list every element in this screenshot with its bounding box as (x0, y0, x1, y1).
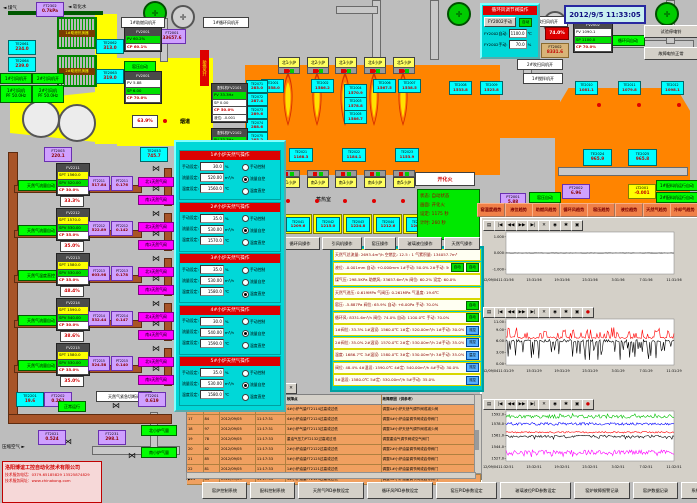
tag-value: 745.7 (147, 154, 160, 159)
status-label: 2#配料机运行自动 (656, 192, 697, 203)
comp-air-label: 压缩空气 ► (2, 444, 25, 450)
radio-温度直控[interactable]: 温度直控 (242, 342, 278, 350)
controller-row: SPT 1580.0 (58, 352, 88, 359)
radio-流量自控[interactable]: 流量自控 (242, 175, 278, 183)
controller-row: PV 1090.1 (575, 29, 611, 36)
chart-toolbar-icon-▣[interactable]: ▣ (571, 220, 583, 231)
svg-text:23:31:56: 23:31:56 (582, 278, 597, 282)
alarm-dot (315, 69, 319, 73)
green-indicator (376, 172, 380, 176)
alarm-cell: 调整重油气调节阀或空气阀门 (382, 435, 482, 444)
radio-label: 温度直控 (250, 343, 265, 349)
tag-TE2006: TE20061567.5 (373, 79, 396, 93)
radio-label: 流量自控 (250, 331, 265, 337)
svg-text:3:31:29: 3:31:29 (611, 369, 624, 373)
tag-value: 6.96 (571, 191, 581, 196)
bottom-button-7[interactable]: 窑炉数据记录 (633, 482, 678, 499)
field-input[interactable]: 540.00 (200, 328, 224, 337)
alarm-cell: 2#小炉油量FT2122过高或过低 (286, 445, 382, 454)
alarm-cell: 调整2#小炉油量调节阀或启停阀门 (382, 445, 482, 454)
south-valve-label: 南2天然气阀 (138, 240, 174, 250)
tag-value: -0.001 (635, 191, 650, 196)
data-row-text: 5#温设: 1580.0℃ 5#定: 530.00m³/h 5#手动: 35.0… (335, 375, 464, 385)
data-row: 循环风: 8331.6m³/h 阀位: 74.0% 自动: 1100.0℃ 手动… (333, 312, 481, 324)
field-label: 温度设定: (182, 289, 199, 295)
datetime-display: 2012/9/5 11:33:05 (564, 5, 646, 24)
tag-value: 0.147 (116, 318, 128, 322)
controller-title: FV2215 (58, 345, 88, 351)
data-row-text: 1#阀位: 33.3% 1#温设: 1560.0℃ 1#定: 520.00m³/… (335, 325, 464, 335)
radio-label: 流量自控 (250, 279, 265, 285)
op-button-引风机操作[interactable]: 引风机操作 (322, 237, 362, 250)
field-label: 手动设定: (182, 215, 199, 221)
radio-circle[interactable] (242, 215, 249, 222)
alarm-dot (401, 199, 405, 203)
controller-title: 配料机FV2102 (213, 130, 246, 136)
valve-icon: ⋈ (152, 365, 160, 373)
alarm-cell: 19 (187, 435, 204, 444)
tag-TE2201: TE220119.6 (16, 392, 44, 407)
radio-group: 手动控制流量自控温度直控 (242, 318, 278, 350)
radio-手动控制[interactable]: 手动控制 (242, 318, 278, 326)
alarm-row[interactable]: 21852012/09/0511:17:335#小炉油量FT2125过高或过低调… (187, 455, 481, 465)
tag-value: 1153.9 (400, 155, 415, 159)
circ-manual-label: FY2002手动: (484, 42, 508, 48)
svg-text:11.00: 11.00 (494, 320, 505, 324)
radio-手动控制[interactable]: 手动控制 (242, 369, 278, 377)
field-input[interactable]: 530.00 (200, 379, 224, 388)
circ-auto-value[interactable]: 1100.0 (509, 29, 527, 38)
svg-text:9.00: 9.00 (496, 328, 505, 332)
tag-value: 289.6 (251, 112, 263, 116)
company-name: 洛阳博谊工控自动化技术有限公司 (5, 464, 99, 472)
fy2002-manual-button[interactable]: FY2002手动 (484, 17, 516, 27)
controller-title: FV2213 (58, 255, 88, 261)
field-unit: m³/h (225, 381, 234, 386)
alarm-cell: 调整5#小炉油量调节阀或启停阀门 (382, 455, 482, 464)
svg-text:1.000: 1.000 (494, 235, 505, 239)
radio-温度直控[interactable]: 温度直控 (242, 187, 278, 195)
tag-value: 0.178 (116, 273, 128, 277)
heat-exchanger-1: 1#助燃热换器 (57, 17, 97, 49)
status-label: 2#吹扫风机开 (517, 59, 563, 70)
alarm-cell: 82 (204, 445, 221, 454)
bottom-button-1[interactable]: 配料控制系统 (250, 482, 295, 499)
tag-value: 1523.8 (484, 88, 499, 92)
data-row: 1#阀位: 33.3% 1#温设: 1560.0℃ 1#定: 520.00m³/… (333, 324, 481, 336)
alarm-header-cell: 故障点 (286, 395, 382, 404)
radio-circle[interactable] (242, 394, 249, 401)
trend-button-6[interactable]: 天然气趋势 (643, 203, 671, 217)
radio-流量自控[interactable]: 流量自控 (242, 227, 278, 235)
tag-TE2008: TE20081533.8 (449, 81, 472, 95)
alarm-cell: 4#小炉油量FT2124过高或过低 (286, 415, 382, 424)
radio-group: 手动控制流量自控温度直控 (242, 266, 278, 298)
tag-TE2041: TE20411209.6 (286, 217, 310, 232)
tag-TE2002: TE20021586.2 (311, 79, 334, 93)
alarm-cell: 2012/09/05 (220, 415, 256, 424)
radio-手动控制[interactable]: 手动控制 (242, 215, 278, 223)
field-unit: % (225, 216, 229, 221)
chart-toolbar-icon-●[interactable]: ● (582, 307, 594, 318)
trend-button-7[interactable]: 冷却气趋势 (670, 203, 697, 217)
tag-value: 8331.6 (547, 50, 563, 55)
south-port-label: 南3小炉 (335, 177, 357, 188)
tag-value: 1570.9 (348, 91, 363, 95)
mode-badge: 自动 (451, 263, 464, 272)
tag-FT2214: FT2214532.44 (88, 311, 110, 326)
radio-label: 手动控制 (250, 216, 265, 222)
svg-text:11:32:51: 11:32:51 (498, 465, 513, 469)
radio-circle[interactable] (242, 188, 249, 195)
alarm-cell: 调整3#小炉天然气调节阀或减少阀 (382, 425, 482, 434)
status-label: 1#配料机运行自动 (656, 180, 697, 191)
tag-TE2004: TE20041570.9 (344, 84, 367, 98)
tag-TE2043: TE20431224.8 (346, 217, 370, 232)
op-button-循环风操作[interactable]: 循环风操作 (280, 237, 320, 250)
field-input[interactable]: 35.0 (200, 265, 224, 274)
mode-badge: 流控 (466, 376, 479, 385)
tag-value: 19.6 (25, 399, 35, 404)
field-label: 流量设定: (182, 381, 199, 387)
alarm-row[interactable]: 17842012/09/0511:17:314#小炉油量FT2124过高或过低调… (187, 415, 481, 425)
bottom-button-3[interactable]: 循环风PID参数设定 (367, 482, 433, 499)
radio-手动控制[interactable]: 手动控制 (242, 163, 278, 171)
field-input[interactable]: 530.00 (200, 225, 224, 234)
data-row-text: 窑压: -5.887Pa 阀位: 65.9% 自动: +6.00Pa 手动: 7… (335, 300, 464, 310)
tag-value: 0.176 (116, 183, 128, 187)
trend-button-1[interactable]: 液位趋势 (505, 203, 533, 217)
bottom-button-6[interactable]: 窑炉故障报警记录 (574, 482, 630, 499)
alarm-cell: 重油气压力PT2132过高或过低 (286, 435, 382, 444)
alarm-dot (343, 69, 347, 73)
alarm-cell: 85 (204, 455, 221, 464)
svg-text:6.00: 6.00 (496, 339, 505, 343)
bottom-button-5[interactable]: 玻璃液位PID参数设定 (500, 482, 571, 499)
tag-TE2074: TE2074288.6 (246, 119, 268, 132)
status-label: 循环风自动 (611, 35, 645, 46)
tag-value: 522.89 (92, 228, 107, 232)
alarm-cell: 11:17:33 (256, 435, 286, 444)
field-input[interactable]: 30.0 (200, 162, 224, 171)
svg-text:7:32:51: 7:32:51 (639, 465, 652, 469)
tag-FT2002: FT20028331.6 (541, 43, 569, 58)
radio-circle[interactable] (242, 279, 249, 286)
tag-FT2211: FT2211517.84 (88, 176, 110, 191)
tag-PT2213: PT22130.178 (111, 266, 133, 281)
burner-indicator (335, 170, 357, 177)
status-label: 1#循环风机开 (203, 17, 249, 28)
tag-PT2002: PT20026.96 (562, 184, 590, 199)
alarm-row[interactable]: 20822012/09/0511:17:332#小炉油量FT2122过高或过低调… (187, 445, 481, 455)
gas-op-panel-title: 3#小炉天然气操作 (180, 254, 280, 263)
radio-label: 手动控制 (250, 319, 265, 325)
field-input[interactable]: 1560.0 (200, 184, 224, 193)
tag-TE2044: TE20441212.6 (376, 217, 400, 232)
controller-title: FV2001 (126, 29, 160, 35)
op-button-玻璃液位操作[interactable]: 玻璃液位操作 (398, 237, 442, 250)
bottom-button-4[interactable]: 窑压PID参数设定 (436, 482, 497, 499)
radio-circle[interactable] (242, 382, 249, 389)
mode-badge: 自动 (466, 263, 479, 272)
tag-value: 517.84 (92, 183, 107, 187)
tag-TE2003: TE20031578.8 (344, 97, 367, 111)
dynamic-layer: ✛✛✛✛✛✛FT23020.7kPaTE2061234.0TE2062313.0… (0, 0, 697, 503)
gas-op-panel-title: 4#小炉天然气操作 (180, 306, 280, 315)
process-data-panel: 天然气总流量: 2693.4m³/h 空燃比: 12.5 : 1 气累积量: 1… (330, 246, 484, 392)
radio-label: 流量自控 (250, 382, 265, 388)
controller-row: CP 35.0% (58, 277, 88, 284)
trend-button-2[interactable]: 助燃风趋势 (532, 203, 560, 217)
data-row-text: 阀位: 48.4% 4#温设: 1590.0℃ 4#定: 540.00m³/h … (335, 363, 464, 373)
radio-circle[interactable] (242, 291, 249, 298)
valve-percent: 35.0% (60, 241, 84, 252)
op-button-天然气操作[interactable]: 天然气操作 (444, 237, 480, 250)
valve-percent: 35.0% (60, 376, 84, 387)
radio-温度直控[interactable]: 温度直控 (242, 239, 278, 247)
field-input[interactable]: 35.0 (200, 214, 224, 223)
controller-row: SPT 1560.0 (58, 172, 88, 179)
field-unit: m³/h (225, 175, 234, 180)
fan-icon: ✛ (655, 2, 679, 26)
controller-row: SPV 540.00 (58, 315, 88, 322)
bell-button-1[interactable]: 故障电铃正常 (644, 47, 697, 60)
bottom-button-0[interactable]: 窑炉控制系统 (202, 482, 247, 499)
fan-icon: ✛ (171, 5, 195, 29)
tag-TE2053: TE2053745.7 (140, 147, 168, 162)
radio-手动控制[interactable]: 手动控制 (242, 266, 278, 274)
radio-流量自控[interactable]: 流量自控 (242, 278, 278, 286)
company-site: 技术服务网址：www.chinakong.com (5, 478, 99, 484)
controller-row: PV 60.2% (126, 36, 160, 43)
valve-percent: 33.3% (60, 196, 84, 207)
controller-row: PV 33.3Hz (213, 92, 246, 99)
svg-text:23:31:29: 23:31:29 (582, 369, 597, 373)
radio-circle[interactable] (242, 267, 249, 274)
bottom-button-2[interactable]: 天然气PID参数设定 (298, 482, 364, 499)
mode-badge: 流控 (466, 338, 479, 347)
svg-text:-1.000: -1.000 (492, 267, 504, 271)
tag-value: 1567.5 (377, 86, 392, 90)
tag-TE2005: TE20051586.7 (344, 110, 367, 124)
radio-温度直控[interactable]: 温度直控 (242, 290, 278, 298)
radio-circle[interactable] (242, 164, 249, 171)
alarm-dot (163, 119, 167, 123)
data-row: 阀位: 48.4% 4#温设: 1590.0℃ 4#定: 540.00m³/h … (333, 362, 481, 374)
tag-value: 0.619 (145, 399, 158, 404)
alarm-cell: 4#小炉气量FT2114过高或过低 (286, 405, 382, 414)
valve-percent: 38.6% (60, 331, 84, 342)
field-unit: % (225, 319, 229, 324)
controller-row: CP 60.1% (126, 44, 160, 51)
alarm-cell: 2012/09/05 (220, 445, 256, 454)
data-row: 天然气总流量: 2693.4m³/h 空燃比: 12.5 : 1 气累积量: 1… (333, 249, 481, 261)
tag-value: 1224.8 (351, 224, 366, 228)
tag-value: 313.0 (103, 46, 116, 51)
alarm-vscroll-thumb[interactable] (475, 430, 479, 450)
alarm-cell: 2012/09/05 (220, 455, 256, 464)
flue-damper-percent: 63.9% (132, 115, 158, 128)
radio-circle[interactable] (242, 227, 249, 234)
alarm-cell: 3#小炉气量FT2113过高或过低 (286, 425, 382, 434)
tag-value: 1215.0 (321, 224, 336, 228)
bell-button-0[interactable]: 试验停电铃 (644, 25, 697, 38)
svg-text:7:31:56: 7:31:56 (639, 278, 652, 282)
scada-screen: 1#助燃热换器 2#助燃热换器 ◄ 煤气 ◄ 软化水 压缩空气 ► 烟道 蓄热室… (0, 0, 697, 503)
soft-water-label: ◄ 软化水 (68, 4, 86, 10)
tag-FT2201: FT22010.619 (138, 392, 166, 407)
radio-温度直控[interactable]: 温度直控 (242, 393, 278, 401)
tag-FT2212: FT2212522.89 (88, 221, 110, 236)
radio-circle[interactable] (242, 330, 249, 337)
mode-badge: 自动 (466, 301, 479, 310)
field-input[interactable]: 30.0 (200, 317, 224, 326)
status-label: 1#引风机开 (0, 73, 32, 84)
data-row-text: 液位: -0.001mm 自动: +0.000mm 1#手动: 50.0% 2#… (335, 263, 449, 273)
valve-icon: ⋈ (152, 255, 160, 263)
trend-button-3[interactable]: 循环风趋势 (560, 203, 588, 217)
svg-text:12/09/04: 12/09/04 (483, 278, 498, 282)
field-input[interactable]: 1580.0 (200, 287, 224, 296)
trend-button-0[interactable]: 窑温度趋势 (477, 203, 505, 217)
svg-text:15:32:51: 15:32:51 (526, 465, 541, 469)
tag-value: 1586.2 (315, 86, 330, 90)
circ-valve-panel: 循环风调节阀操作 FY2002手动 自动 FY2002自动: 1100.0 ℃ … (480, 3, 540, 59)
open-fire-button[interactable]: 开化火 (415, 172, 475, 186)
field-unit: % (225, 164, 229, 169)
svg-text:15:31:56: 15:31:56 (526, 278, 541, 282)
alarm-toolbar-icon-9[interactable]: ✕ (285, 383, 297, 394)
tag-TE2062: TE2062313.0 (96, 39, 124, 54)
radio-流量自控[interactable]: 流量自控 (242, 381, 278, 389)
tag-value: 0.140 (116, 363, 128, 367)
status-row: 设定: 1175 秒 (420, 210, 477, 219)
gas-operation-popup: 1#小炉天然气操作手动设定:30.0%流量设定:520.00m³/h温度设定:1… (174, 140, 286, 412)
radio-label: 温度直控 (250, 240, 265, 246)
alarm-cell: 84 (204, 415, 221, 424)
field-unit: m³/h (225, 227, 234, 232)
controller-row: CP 50.0% (213, 107, 246, 114)
controller-row: SPT 1580.0 (58, 262, 88, 269)
field-input[interactable]: 1570.0 (200, 236, 224, 245)
circ-auto-label: FY2002自动: (484, 31, 508, 37)
alarm-hscrollbar[interactable] (186, 472, 476, 479)
tag-value: 532.44 (92, 318, 107, 322)
field-input[interactable]: 530.00 (200, 276, 224, 285)
south-valve-label: 南1天然气阀 (138, 195, 174, 205)
alarm-dot (677, 103, 681, 107)
controller-title: FV2212 (58, 210, 88, 216)
status-row: 计时: 260 秒 (420, 219, 477, 228)
svg-text:7:31:29: 7:31:29 (639, 369, 652, 373)
svg-text:19:32:51: 19:32:51 (554, 465, 569, 469)
controller-配料机FV2101: 配料机FV2101PV 33.3HzSP 0.00CP 50.0%液位: -0.… (211, 83, 248, 123)
tag-value: 1586.7 (348, 117, 363, 121)
trend-button-4[interactable]: 窑压趋势 (587, 203, 615, 217)
radio-circle[interactable] (242, 370, 249, 377)
radio-circle[interactable] (242, 342, 249, 349)
chart-toolbar-icon-●[interactable]: ● (582, 399, 594, 410)
field-input[interactable]: 35.0 (200, 368, 224, 377)
tag-value: 0.524 (45, 437, 58, 442)
field-input[interactable]: 1580.0 (200, 390, 224, 399)
controller-FV2211: FV2211SPT 1560.0SPV 520.00CP 30.0% (56, 163, 90, 196)
tag-value: 220.1 (51, 154, 64, 159)
circ-valve-panel-title: 循环风调节阀操作 (483, 6, 537, 15)
gas-op-panel-3: 3#小炉天然气操作手动设定:35.0%流量设定:530.00m³/h温度设定:1… (179, 253, 281, 303)
tag-value: 524.58 (92, 363, 107, 367)
data-row: 液位: -0.001mm 自动: +0.000mm 1#手动: 50.0% 2#… (333, 262, 481, 274)
fan-unit-2-pf: PF 50.0Hz (38, 94, 58, 99)
radio-circle[interactable] (242, 176, 249, 183)
field-input[interactable]: 520.00 (200, 173, 224, 182)
alarm-dot (637, 103, 641, 107)
alarm-dot (343, 199, 347, 203)
bottom-button-8[interactable]: 系统报警值设定 (681, 482, 697, 499)
red-indicator (399, 172, 403, 176)
south-valve-label: 南4天然气阀 (138, 330, 174, 340)
data-row: 5#温设: 1580.0℃ 5#定: 530.00m³/h 5#手动: 35.0… (333, 374, 481, 386)
alarm-cell: 2012/09/05 (220, 435, 256, 444)
radio-label: 温度直控 (250, 291, 265, 297)
valve-icon: ⋈ (152, 300, 160, 308)
controller-FV2214: FV2214SPT 1590.0SPV 540.00CP 30.0% (56, 298, 90, 331)
field-unit: m³/h (225, 278, 234, 283)
radio-label: 手动控制 (250, 267, 265, 273)
controller-FV2001: FV2001PV 60.2%CP 60.1% (124, 27, 162, 52)
radio-circle[interactable] (242, 318, 249, 325)
tag-value: 33657.6 (162, 36, 181, 41)
alarm-cell: 78 (204, 435, 221, 444)
radio-流量自控[interactable]: 流量自控 (242, 330, 278, 338)
field-input[interactable]: 1590.0 (200, 339, 224, 348)
alarm-dot (401, 69, 405, 73)
op-button-窑压操作[interactable]: 窑压操作 (364, 237, 396, 250)
radio-circle[interactable] (242, 239, 249, 246)
controller-row: SPT 1590.0 (58, 307, 88, 314)
controller-FV2002: FV2002PV 1090.1SP 1100.0CP 70.0% (573, 20, 613, 53)
tag-PT2211: PT22110.176 (111, 176, 133, 191)
controller-FV2215: FV2215SPT 1580.0SPV 530.00CP 35.0% (56, 343, 90, 376)
svg-text:0.000: 0.000 (494, 251, 505, 255)
field-unit: % (225, 370, 229, 375)
shutoff-valve-icon: ⋈ (112, 402, 120, 410)
green-indicator (405, 69, 409, 73)
alarm-cell: 20 (187, 445, 204, 454)
circ-manual-value[interactable]: 70.0 (509, 40, 527, 49)
alarm-row[interactable]: 19782012/09/0511:17:33重油气压力PT2132过高或过低调整… (187, 435, 481, 445)
svg-text:1561.0: 1561.0 (491, 434, 504, 438)
alarm-row[interactable]: 18972012/09/0511:17:313#小炉气量FT2113过高或过低调… (187, 425, 481, 435)
radio-label: 手动控制 (250, 164, 265, 170)
tag-value: 1079.8 (622, 88, 637, 92)
tag-value: 0.142 (116, 228, 128, 232)
tag-TE2021: TE20211168.3 (289, 148, 313, 162)
data-row: 煤气压: 298.5KPa 助燃风: 33657.6m³/h 阀位: 60.2%… (333, 274, 481, 286)
trend-button-5[interactable]: 液位趋势 (615, 203, 643, 217)
data-row-text: 温度: 1686.7℃ 3#温设: 1580.0℃ 3#定: 530.00m³/… (335, 350, 464, 360)
status-label: 正常运行 (58, 401, 86, 412)
controller-row: CP 35.0% (58, 367, 88, 374)
svg-text:3:31:56: 3:31:56 (611, 278, 624, 282)
valve-icon: ⋈ (152, 275, 160, 283)
controller-title: 配料机FV2101 (213, 85, 246, 91)
tag-FT2001: FT200133657.6 (158, 29, 186, 44)
alarm-dot (315, 199, 319, 203)
fan-housing (22, 100, 60, 138)
tag-TE2063: TE2063319.0 (96, 69, 124, 84)
tag-value: 1209.6 (291, 224, 306, 228)
